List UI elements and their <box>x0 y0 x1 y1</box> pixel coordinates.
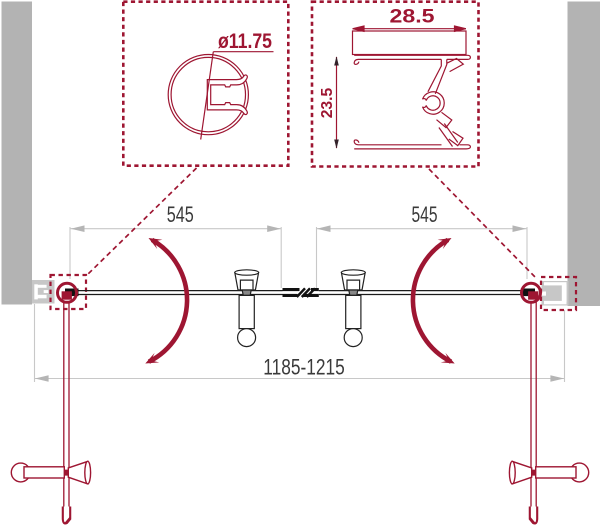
svg-text:ø11.75: ø11.75 <box>218 29 272 53</box>
svg-text:545: 545 <box>412 202 438 227</box>
svg-text:545: 545 <box>167 202 194 227</box>
svg-text:28.5: 28.5 <box>390 6 435 28</box>
svg-text:23.5: 23.5 <box>319 87 336 118</box>
svg-text:1185-1215: 1185-1215 <box>263 355 345 380</box>
